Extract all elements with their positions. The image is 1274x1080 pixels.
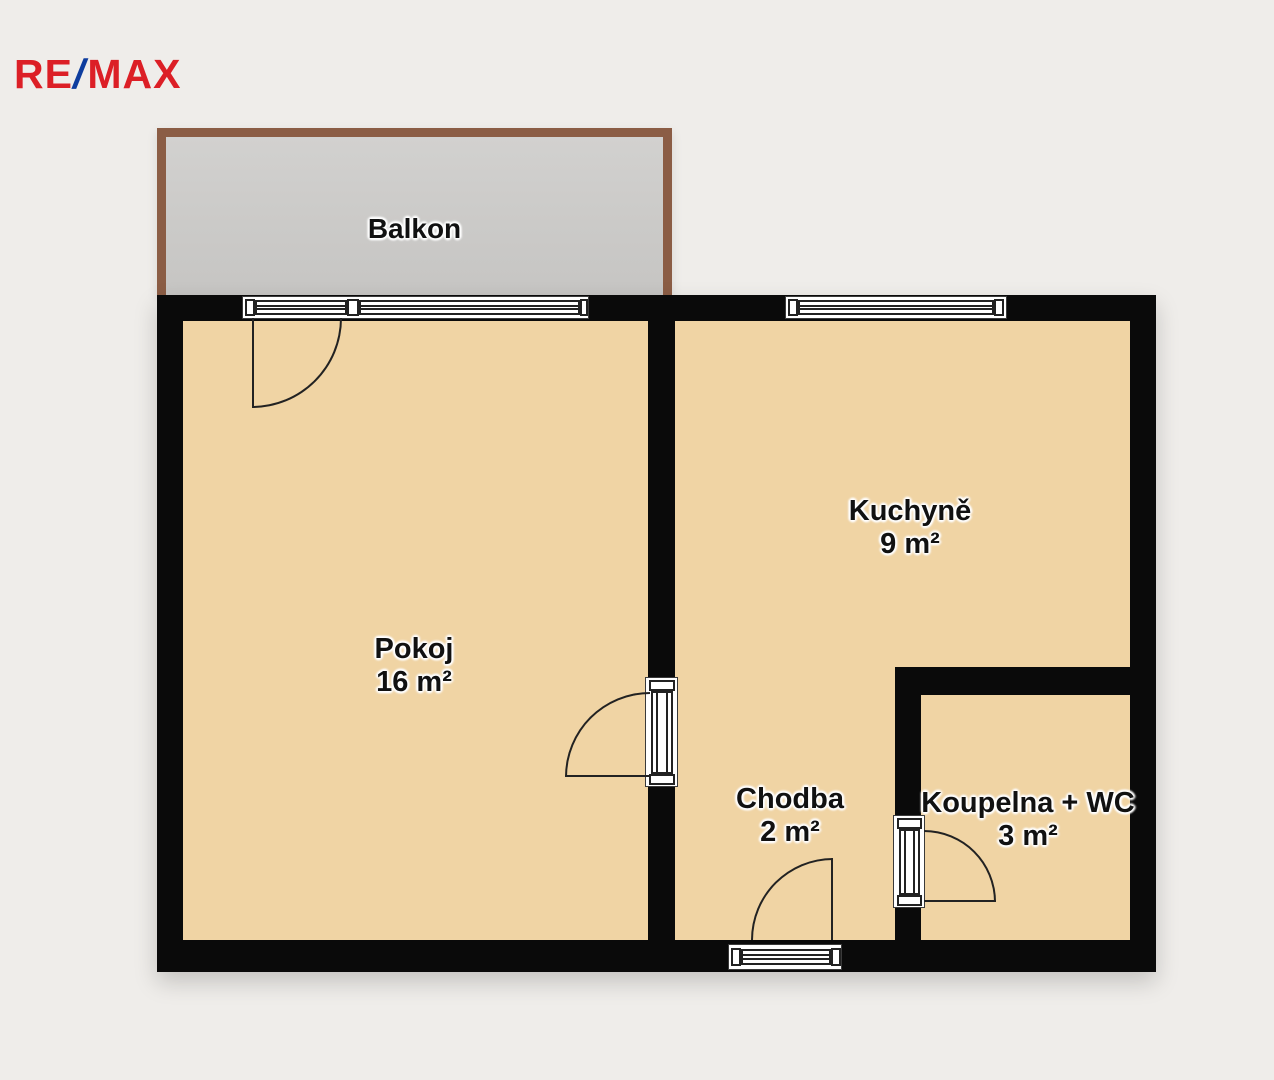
balcony-door-pane bbox=[255, 300, 347, 315]
window-pane bbox=[798, 300, 994, 315]
room-area: 3 m² bbox=[921, 820, 1134, 853]
room-name: Kuchyně bbox=[849, 495, 971, 528]
koupelna-door-frame bbox=[893, 815, 925, 908]
room-area: 2 m² bbox=[736, 816, 844, 849]
apartment-plan: Pokoj 16 m² Kuchyně 9 m² Chodba 2 m² Kou… bbox=[157, 295, 1156, 972]
door-pane bbox=[741, 949, 831, 965]
kuchyne-label: Kuchyně 9 m² bbox=[849, 495, 971, 561]
kuchyne-window bbox=[785, 296, 1007, 319]
room-area: 16 m² bbox=[375, 666, 454, 699]
window-endcap bbox=[580, 299, 588, 316]
door-endcap bbox=[831, 948, 841, 966]
door-pane bbox=[651, 691, 673, 774]
room-name: Pokoj bbox=[375, 633, 454, 666]
door-endcap bbox=[897, 895, 922, 906]
entrance-door-frame bbox=[728, 944, 842, 970]
window-endcap bbox=[994, 299, 1004, 316]
room-pokoj bbox=[183, 321, 648, 940]
door-endcap bbox=[649, 774, 675, 785]
balcony-area: Balkon bbox=[157, 128, 672, 295]
balcony-label: Balkon bbox=[368, 213, 461, 245]
koupelna-label: Koupelna + WC 3 m² bbox=[921, 787, 1134, 853]
door-endcap bbox=[897, 818, 922, 829]
room-name: Koupelna + WC bbox=[921, 787, 1134, 820]
remax-logo: RE/MAX bbox=[14, 54, 181, 95]
window-endcap bbox=[245, 299, 255, 316]
room-name: Chodba bbox=[736, 783, 844, 816]
logo-re: RE bbox=[14, 51, 73, 97]
door-endcap bbox=[649, 680, 675, 691]
floor-plan-page: RE/MAX Balkon bbox=[0, 0, 1274, 1080]
window-divider bbox=[347, 299, 359, 316]
room-area: 9 m² bbox=[849, 528, 971, 561]
room-kuchyne bbox=[675, 321, 1130, 667]
chodba-label: Chodba 2 m² bbox=[736, 783, 844, 849]
pokoj-label: Pokoj 16 m² bbox=[375, 633, 454, 699]
door-endcap bbox=[731, 948, 741, 966]
window-pane bbox=[359, 300, 580, 315]
window-endcap bbox=[788, 299, 798, 316]
pokoj-balcony-door-window bbox=[242, 296, 589, 319]
logo-max: MAX bbox=[87, 51, 181, 97]
door-pane bbox=[899, 829, 920, 895]
